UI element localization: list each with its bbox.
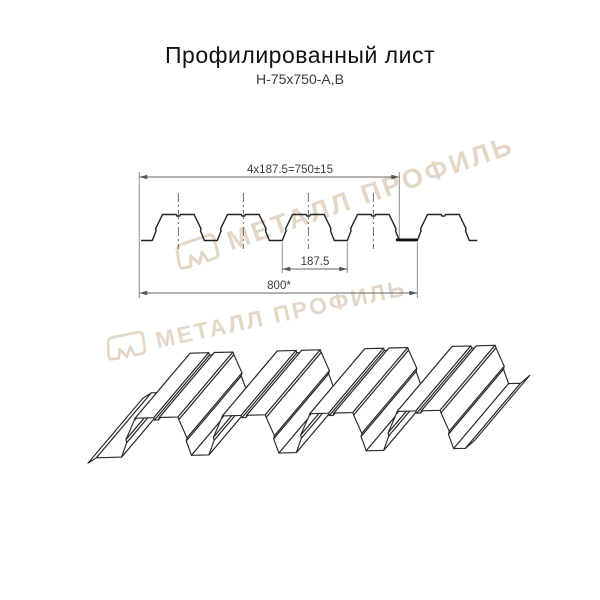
dimension-label-overall: 800* [267, 280, 291, 292]
page-title: Профилированный лист [0, 42, 600, 69]
isometric-view [88, 345, 530, 463]
cross-section-view [141, 193, 477, 249]
dimension-labels: 4х187.5=750±15 187.5 800* [247, 164, 333, 292]
dimension-label-top: 4х187.5=750±15 [247, 164, 333, 176]
dimension-label-pitch: 187.5 [301, 256, 330, 268]
page-subtitle: Н-75х750-А,В [0, 71, 600, 87]
profile-sheet-drawing: 4х187.5=750±15 187.5 800* [0, 0, 600, 600]
